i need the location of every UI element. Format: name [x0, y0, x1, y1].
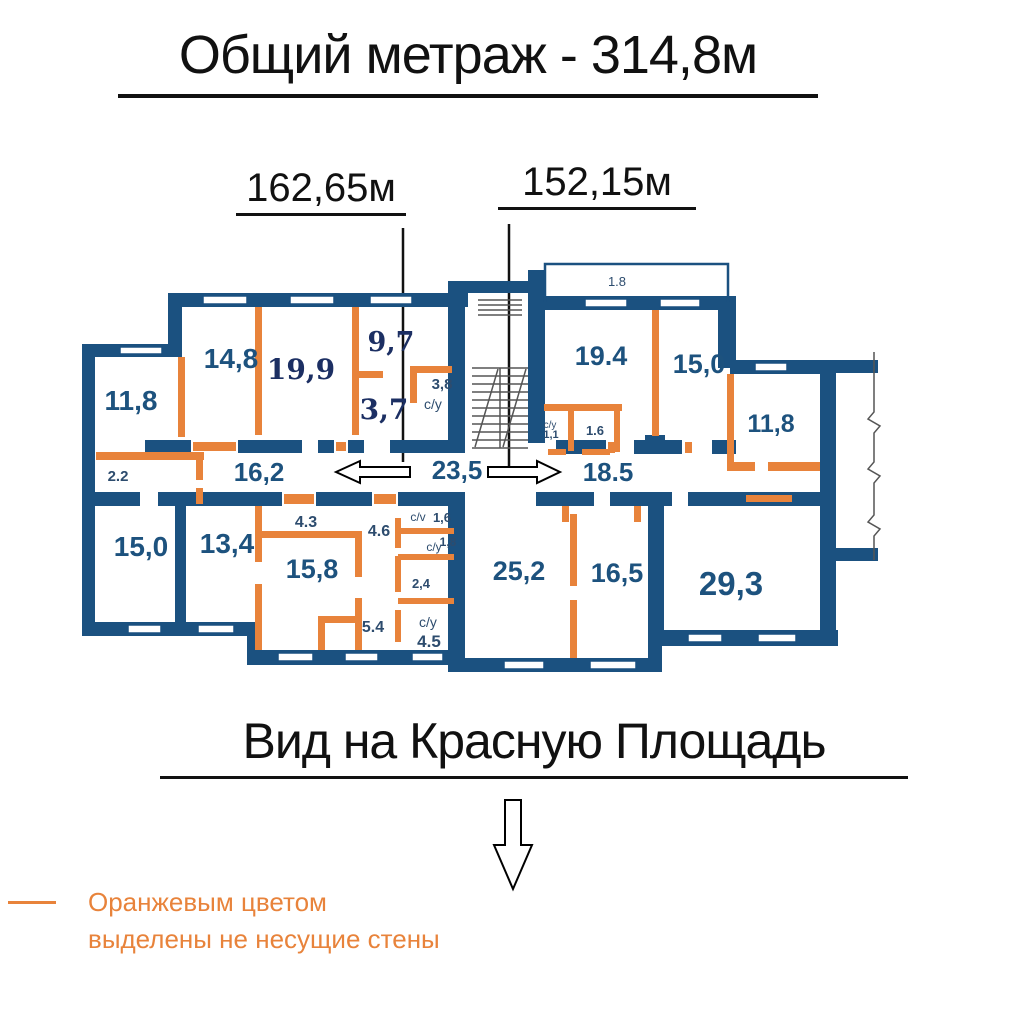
balcony-right-edge: [868, 352, 880, 560]
room-label: 23,5: [432, 455, 483, 485]
room-label: с/v: [410, 510, 425, 524]
room-label: 1.6: [586, 423, 604, 438]
room-label: 1,6: [433, 510, 451, 525]
room-label: 2.2: [108, 468, 129, 485]
room-label: 4.3: [295, 514, 317, 531]
legend-orange-line: [8, 901, 56, 904]
room-label: 1,1: [543, 429, 558, 441]
room-label: 14,8: [204, 343, 259, 374]
room-label: 16,5: [591, 558, 644, 588]
room-label: 2,4: [412, 576, 431, 591]
room-label: 4.5: [417, 632, 441, 651]
room-label: 29,3: [699, 565, 763, 602]
legend-text-line2: выделены не несущие стены: [88, 921, 440, 958]
floor-plan: 11,8 14,8 19,9 9,7 3,7 3,8 с/у 2.2 16,2 …: [0, 0, 1024, 1010]
corridor-arrow-right: [488, 461, 560, 483]
legend-text: Оранжевым цветом выделены не несущие сте…: [88, 884, 440, 958]
room-label: 19.4: [575, 341, 628, 371]
room-label: 13,4: [200, 528, 255, 559]
room-label: 19,9: [267, 353, 335, 386]
legend-text-line1: Оранжевым цветом: [88, 884, 440, 921]
room-label: с/у: [419, 614, 437, 630]
room-label: 3,7: [360, 393, 409, 426]
room-label: 15,0: [673, 349, 726, 379]
room-label: 16,2: [234, 457, 285, 487]
room-label: 1,8: [440, 535, 457, 549]
room-label: 1.8: [608, 274, 626, 289]
room-label: 5.4: [362, 619, 384, 636]
room-label: 3,8: [432, 376, 453, 393]
view-caption: Вид на Красную Площадь: [160, 712, 908, 779]
room-label: 15,8: [286, 554, 339, 584]
room-label: 11,8: [105, 385, 158, 416]
room-label: с/у: [424, 396, 442, 412]
room-label: 25,2: [493, 556, 546, 586]
view-direction-arrow: [494, 800, 532, 889]
room-label: 9,7: [368, 327, 415, 358]
room-label: 11,8: [747, 410, 794, 438]
room-label: 4.6: [368, 523, 390, 540]
corridor-arrow-left: [336, 461, 410, 483]
room-label: 18.5: [583, 457, 634, 487]
room-label: 15,0: [114, 531, 169, 562]
staircase: [472, 300, 528, 448]
